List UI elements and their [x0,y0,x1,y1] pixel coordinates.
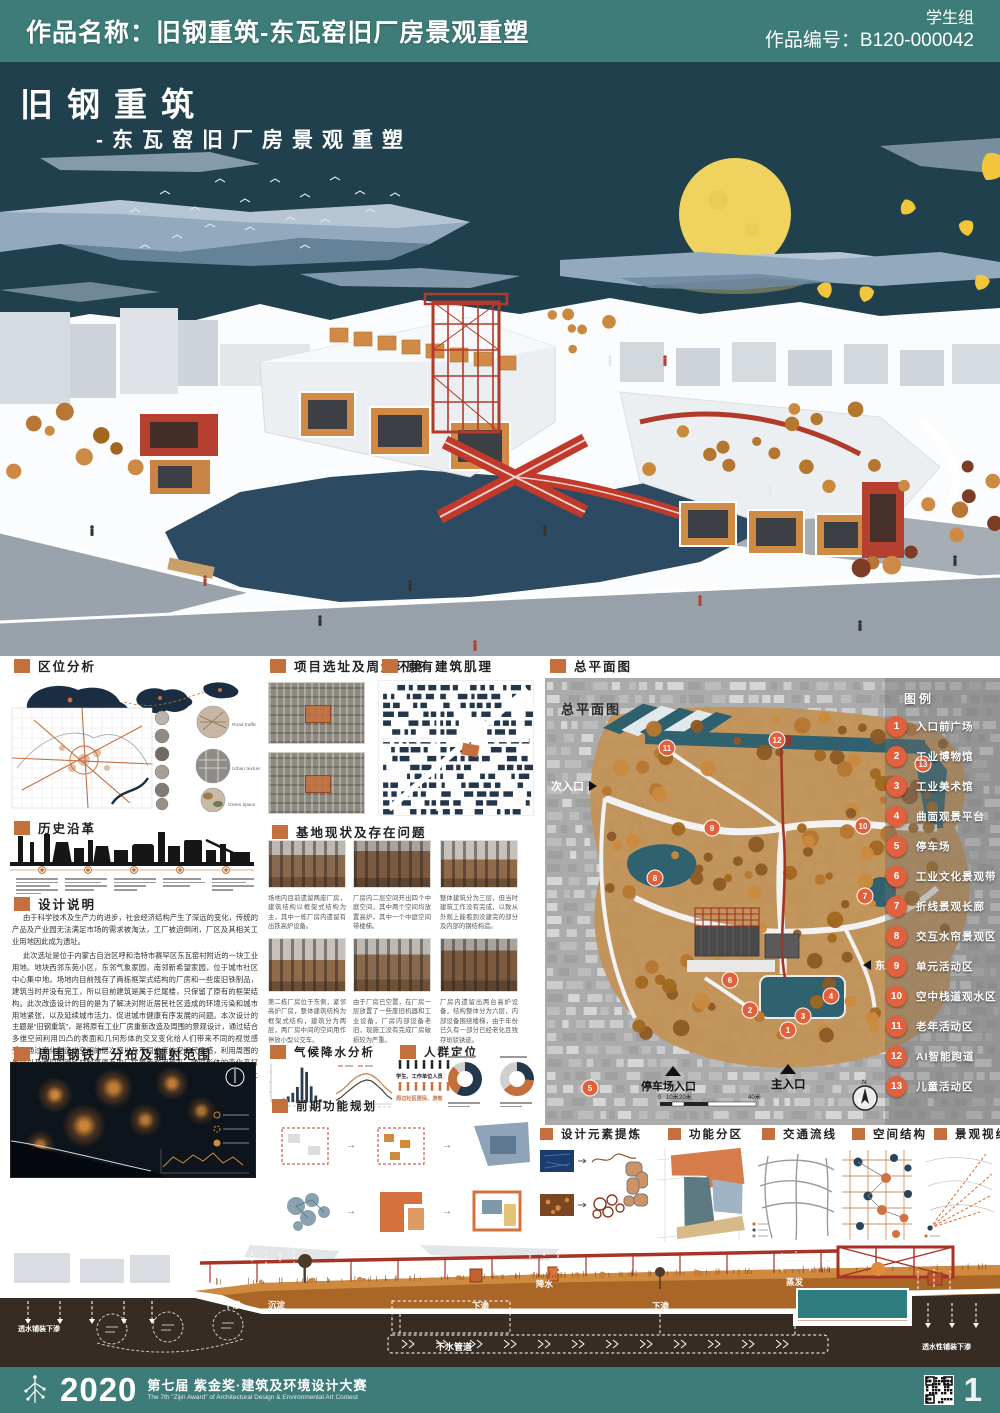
figure-ground-map [378,680,534,816]
site-photo-5 [353,938,431,992]
svg-text:沉淀: 沉淀 [268,1300,286,1310]
svg-text:10: 10 [859,822,868,831]
legend-item-6: 6工业文化景观带 [886,866,997,887]
svg-text:下水管道: 下水管道 [436,1341,472,1352]
svg-text:→: → [346,1206,356,1217]
hero-subtitle: -东瓦窑旧厂房景观重塑 [96,124,412,154]
poster-board: 作品名称：旧钢重筑-东瓦窑旧厂房景观重塑 学生组 作品编号：B120-00004… [0,0,1000,1413]
section-title-radiation: 周围钢铁厂分布及辐射范围 [14,1044,212,1063]
svg-text:4: 4 [829,992,834,1001]
section-title-texture: 原有建筑肌理 [382,656,493,675]
legend-item-12: 12AI智能跑道 [886,1046,975,1067]
svg-text:1: 1 [786,1026,791,1035]
svg-text:40米: 40米 [748,1093,761,1101]
legend-item-3: 3工业美术馆 [886,776,974,797]
steel-plant-radiation-map [10,1062,256,1178]
photo-caption-2: 厂房内二层空间开出四个中庭空间，其中两个空间均放置高炉，其中一个中庭空间带楼梯。 [353,894,431,932]
site-satellite-1 [268,682,365,744]
parking-entrance-label: 停车场入口 [641,1079,696,1093]
svg-text:→: → [346,1140,356,1151]
svg-text:9: 9 [710,824,715,833]
svg-text:降水: 降水 [536,1279,554,1289]
structure-diagram [838,1146,916,1244]
factory-silhouette [10,832,258,874]
circle-label-road: Road traffic [232,722,257,728]
section-title-circulation: 交通流线 [762,1126,837,1142]
photo-caption-6: 厂房内遗留出两台高炉设备，结构整体分为六层，内部设备围绕楼梯，由于年份已久有一部… [440,998,518,1045]
circle-label-green: Green space [228,802,256,808]
elements-diagram [540,1146,648,1244]
section-title-status: 基地现状及存在问题 [272,822,427,841]
crowd-group1-label: 学生、工作单位人员 [396,1073,443,1080]
legend-item-11: 11老年活动区 [886,1016,974,1037]
water-section-view: 降水 降水 蒸发 沉淀 下渗 下渗 下渗 下水管道 透水铺装下渗 透水性铺装下渗 [0,1245,1000,1367]
svg-text:蒸发: 蒸发 [786,1277,804,1287]
footer-year: 2020 [60,1371,137,1409]
svg-text:20米: 20米 [679,1093,692,1101]
crowd-donut-1 [448,1062,482,1096]
orange-square-icon [14,659,30,673]
legend-item-5: 5停车场 [886,836,951,857]
crowd-donut-2 [500,1062,534,1096]
work-code: 作品编号：B120-000042 [765,29,974,53]
section-title-structure: 空间结构 [852,1126,927,1142]
footer-award-text: 第七届 紫金奖·建筑及环境设计大赛 The 7th "Zijin Award" … [147,1379,367,1400]
crowd-group2-label: 周边社区居民、游客 [396,1095,443,1102]
section-title-description: 设计说明 [14,894,96,913]
svg-text:下渗: 下渗 [472,1301,490,1311]
section-title-planning: 前期功能规划 [272,1098,377,1114]
legend-item-2: 2工业博物馆 [886,746,974,767]
photo-caption-1: 场地内目前遗留两座厂房，建筑结构以框架式结构为主，其中一栋厂房内遗留有出铁高炉设… [268,894,346,932]
section-title-masterplan: 总平面图 [550,656,632,675]
site-satellite-2 [268,752,365,814]
svg-text:5: 5 [588,1084,593,1093]
legend-item-9: 9单元活动区 [886,956,974,977]
svg-text:→: → [442,1140,452,1151]
group-label: 学生组 [765,9,974,29]
site-photo-2 [353,840,431,888]
site-photo-6 [440,938,518,992]
svg-text:下渗: 下渗 [652,1301,670,1311]
legend-item-1: 1入口前广场 [886,716,974,737]
page-number: 1 [964,1371,982,1409]
section-pool [797,1289,908,1319]
footer-bar: 2020 第七届 紫金奖·建筑及环境设计大赛 The 7th "Zijin Aw… [0,1367,1000,1413]
section-title-elements: 设计元素提炼 [540,1126,642,1142]
sightline-diagram [920,1146,998,1244]
photo-caption-3: 整体建筑分为三层，但当时建筑工作没有完成，以致从外观上能看到没建完的部分及内部的… [440,894,518,932]
crowd-icons-row1 [396,1060,458,1072]
legend-item-10: 10空中栈道观水区 [886,986,997,1007]
legend-item-8: 8交互水帘景观区 [886,926,997,947]
svg-text:7: 7 [863,892,868,901]
location-analysis-figure: Road traffic Urban texture Green space [8,678,260,812]
svg-text:8: 8 [653,874,658,883]
legend-item-4: 4曲面观景平台 [886,806,985,827]
svg-text:降水: 降水 [262,1273,280,1283]
legend-item-7: 7折线景观长廊 [886,896,985,917]
section-title-sightlines: 景观视线 [934,1126,1000,1142]
svg-text:2: 2 [748,1006,753,1015]
section-title-location: 区位分析 [14,656,96,675]
svg-text:12: 12 [773,736,782,745]
svg-text:11: 11 [663,744,672,753]
svg-text:N: N [862,1079,867,1086]
zijin-award-logo-icon [18,1373,52,1407]
main-entrance-label: 主入口 [771,1077,806,1091]
work-name: 作品名称：旧钢重筑-东瓦窑旧厂房景观重塑 [26,13,529,49]
svg-text:透水铺装下渗: 透水铺装下渗 [18,1324,61,1333]
qr-code [924,1375,954,1405]
svg-text:透水性铺装下渗: 透水性铺装下渗 [922,1342,972,1351]
zoning-diagram [655,1146,747,1244]
hero-render: 旧钢重筑 -东瓦窑旧厂房景观重塑 [0,62,1000,656]
svg-text:10米: 10米 [666,1093,679,1101]
site-photo-4 [268,938,346,992]
photo-caption-4: 第二栋厂房位于东侧，紧邻高炉厂房，整体建筑结构为框架式结构，建筑分为两层，两厂房… [268,998,346,1045]
svg-text:6: 6 [728,976,733,985]
hero-title: 旧钢重筑 [20,78,208,126]
svg-text:→: → [442,1206,452,1217]
legend-item-13: 13儿童活动区 [886,1076,974,1097]
legend-title: 图例 [904,690,934,707]
header-bar: 作品名称：旧钢重筑-东瓦窑旧厂房景观重塑 学生组 作品编号：B120-00004… [0,0,1000,62]
secondary-entrance-label: 次入口 [551,779,584,793]
plan-overlay-title: 总平面图 [561,702,621,717]
section-title-climate: 气候降水分析 [270,1044,375,1060]
header-right: 学生组 作品编号：B120-000042 [765,9,974,53]
svg-text:3: 3 [801,1012,806,1021]
planning-diagrams: →→→→ [268,1114,535,1244]
section-title-zoning: 功能分区 [668,1126,743,1142]
circle-label-urban: Urban texture [232,766,260,772]
photo-caption-5: 由于厂房已空置，在厂房一层放置了一些废旧机器和工业设备，厂房内部设备老旧，现施工… [353,998,431,1045]
circulation-diagram [748,1146,840,1244]
site-photo-1 [268,840,346,888]
site-photo-3 [440,840,518,888]
svg-text:下渗: 下渗 [224,1300,242,1310]
